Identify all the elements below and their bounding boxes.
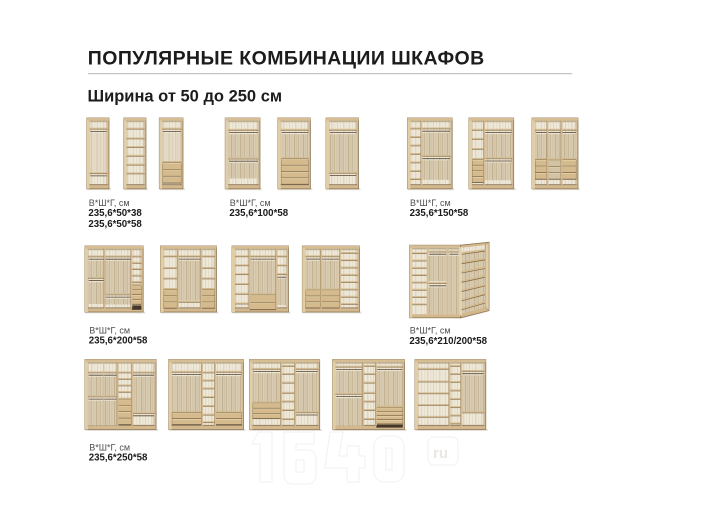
svg-text:В*Ш*Г, см: В*Ш*Г, см	[89, 443, 130, 453]
svg-text:В*Ш*Г, см: В*Ш*Г, см	[89, 198, 130, 208]
svg-text:В*Ш*Г, см: В*Ш*Г, см	[230, 198, 271, 208]
svg-text:235,6*50*58: 235,6*50*58	[88, 219, 142, 230]
svg-text:235,6*250*58: 235,6*250*58	[89, 453, 148, 464]
svg-text:Ширина от 50 до 250 см: Ширина от 50 до 250 см	[88, 88, 283, 106]
svg-text:В*Ш*Г, см: В*Ш*Г, см	[410, 326, 451, 336]
svg-text:В*Ш*Г, см: В*Ш*Г, см	[410, 198, 451, 208]
svg-text:В*Ш*Г, см: В*Ш*Г, см	[89, 326, 130, 336]
svg-text:235,6*100*58: 235,6*100*58	[229, 208, 288, 219]
svg-text:235,6*150*58: 235,6*150*58	[410, 208, 469, 219]
svg-text:235,6*50*38: 235,6*50*38	[88, 208, 142, 219]
svg-text:235,6*210/200*58: 235,6*210/200*58	[409, 336, 487, 347]
svg-text:235,6*200*58: 235,6*200*58	[89, 336, 148, 347]
svg-text:ПОПУЛЯРНЫЕ КОМБИНАЦИИ ШКАФОВ: ПОПУЛЯРНЫЕ КОМБИНАЦИИ ШКАФОВ	[88, 48, 485, 70]
svg-text:ru: ru	[433, 445, 448, 462]
